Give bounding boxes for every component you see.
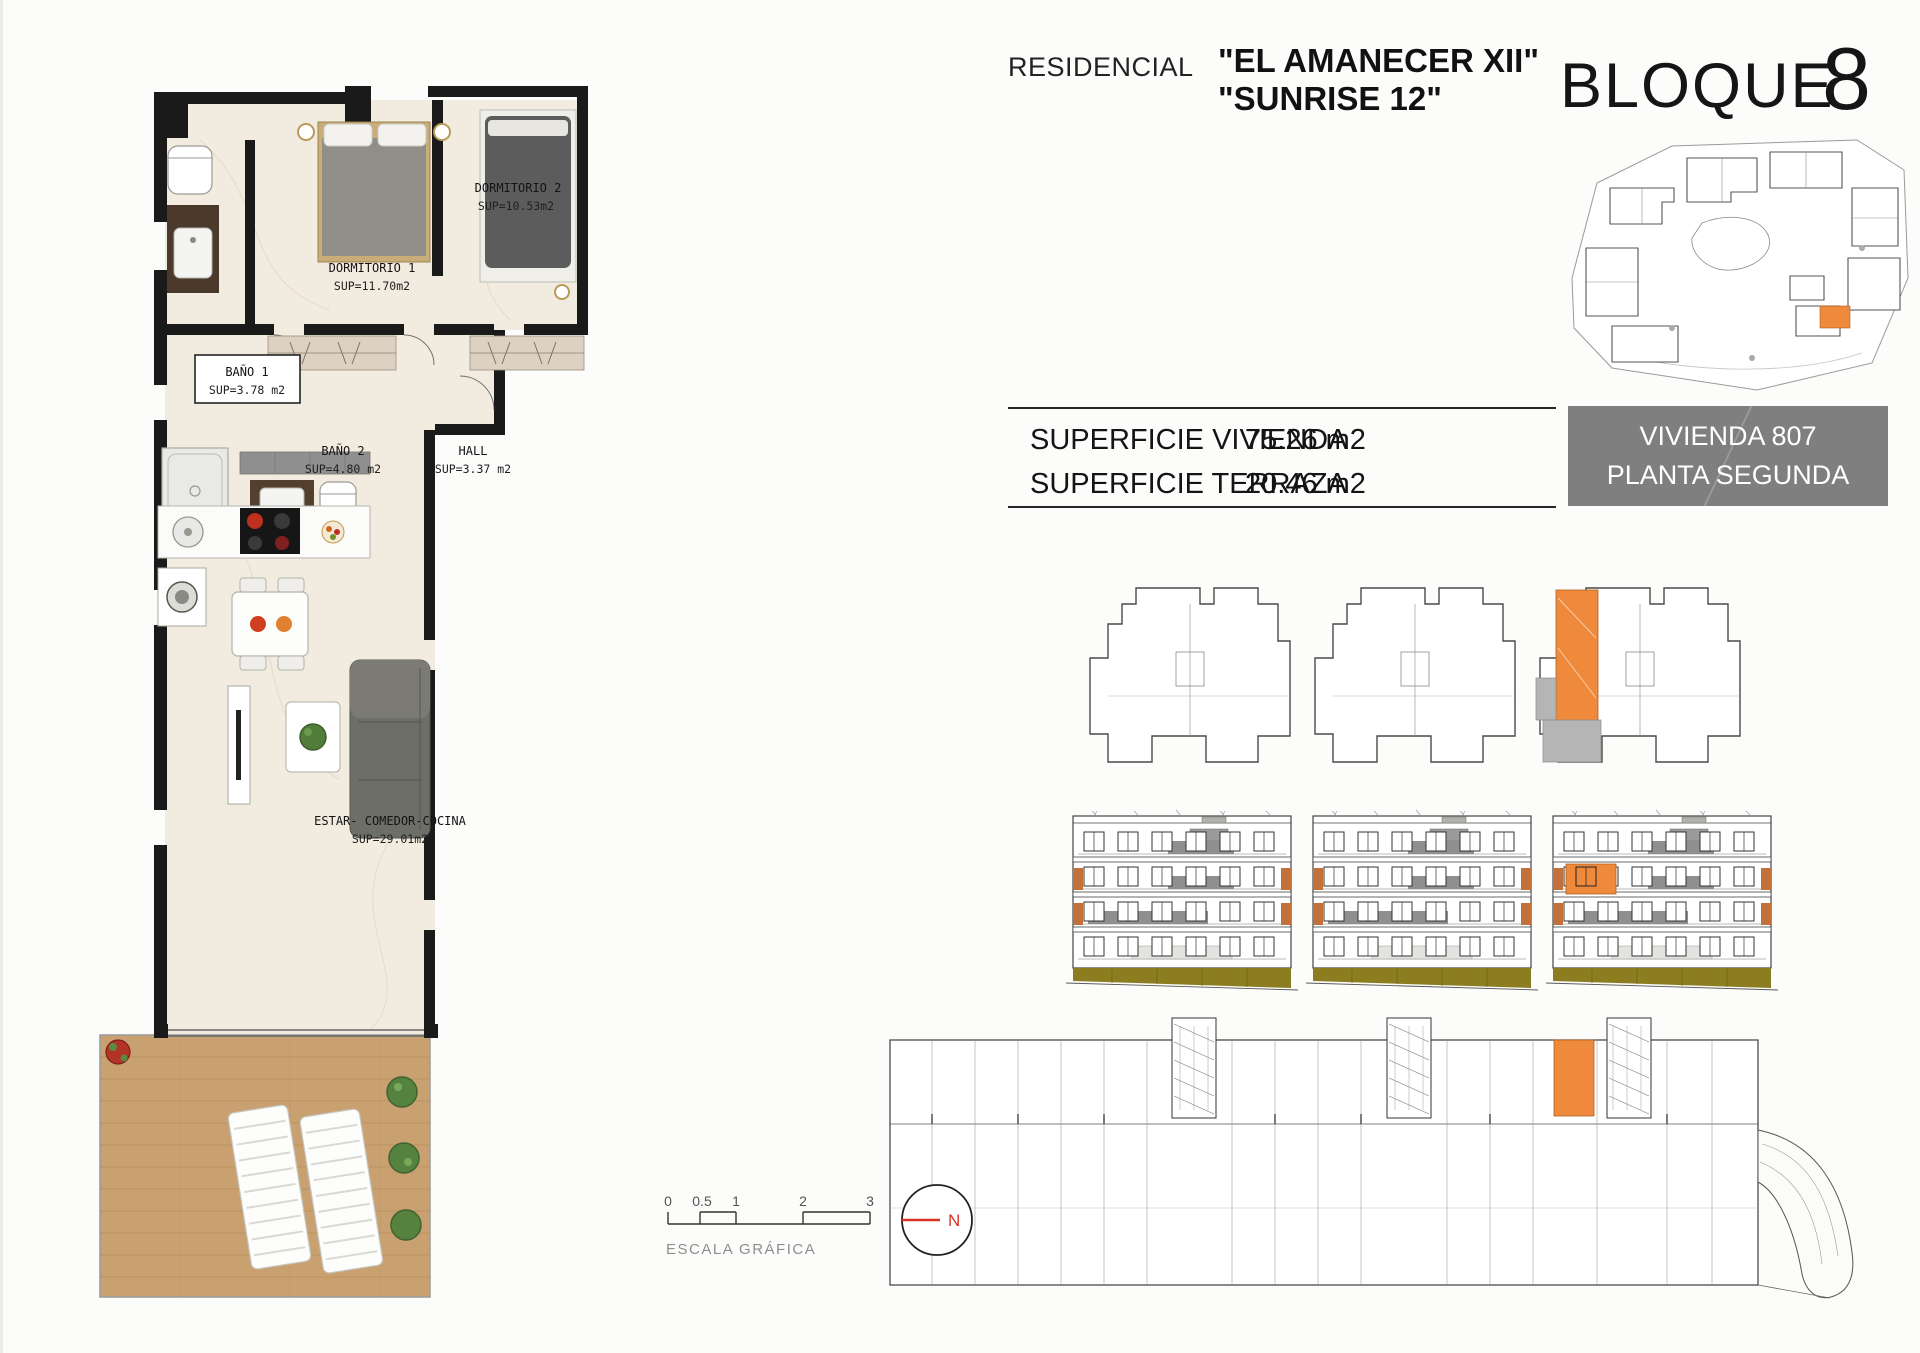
elevation-3-highlight (1566, 864, 1616, 894)
table-top-rule (1008, 407, 1556, 409)
elevation-highlight-unit (1566, 864, 1616, 894)
site-highlight-unit (1820, 306, 1850, 328)
room-label-dormitorio-2: DORMITORIO 2 (475, 181, 562, 195)
unit-identity-box: VIVIENDA 807 PLANTA SEGUNDA (1568, 406, 1888, 506)
room-label-bano-1: BAÑO 1 (225, 364, 268, 379)
elevation-2 (1306, 810, 1538, 990)
room-label-hall: HALL (459, 444, 488, 458)
ground-plan-highlight-unit (1554, 1040, 1594, 1116)
bloque-number: 8 (1822, 28, 1871, 130)
apartment-floorplan: DORMITORIO 1 SUP=11.70m2 DORMITORIO 2 SU… (90, 80, 600, 1320)
table-row-vivienda-value: 75.26 m2 (1245, 424, 1366, 457)
unit-number: VIVIENDA 807 (1639, 421, 1816, 452)
block-floorplans (1078, 578, 1758, 793)
room-area-bano-2: SUP=4.80 m2 (305, 462, 381, 476)
scale-bar-rule (668, 1212, 870, 1224)
residence-name-line1: "EL AMANECER XII" (1218, 42, 1539, 80)
scale-tick-05: 0.5 (692, 1193, 712, 1209)
site-plan (1552, 128, 1912, 408)
scan-edge (0, 0, 3, 1353)
elevations (1062, 800, 1822, 1000)
elevation-1 (1066, 810, 1298, 990)
north-compass: N (890, 1178, 990, 1278)
room-area-hall: SUP=3.37 m2 (435, 462, 511, 476)
scale-ticks: 0 0.5 1 2 3 (664, 1193, 874, 1209)
tower-plan-1 (1090, 588, 1290, 762)
elevation-3 (1546, 810, 1778, 990)
scale-tick-3: 3 (866, 1193, 874, 1209)
room-label-estar: ESTAR- COMEDOR-COCINA (314, 814, 466, 828)
coffee-table (286, 702, 340, 772)
table-bottom-rule (1008, 506, 1556, 508)
ground-plan (872, 1012, 1882, 1312)
scale-tick-0: 0 (664, 1193, 672, 1209)
plan-sheet: RESIDENCIAL "EL AMANECER XII" "SUNRISE 1… (0, 0, 1920, 1353)
scale-bar-label: ESCALA GRÁFICA (666, 1241, 816, 1258)
tower-highlight-unit (1556, 590, 1598, 726)
residencial-label: RESIDENCIAL (1008, 52, 1194, 83)
scale-tick-2: 2 (799, 1193, 807, 1209)
tv-bench (228, 686, 250, 804)
sofa (350, 660, 430, 838)
tower-plan-2 (1315, 588, 1515, 762)
room-area-dormitorio-2: SUP=10.53m2 (478, 199, 554, 213)
unit-floor: PLANTA SEGUNDA (1607, 460, 1850, 491)
room-area-estar: SUP=29.01m2 (352, 832, 428, 846)
dining-set (232, 578, 308, 670)
residence-name-line2: "SUNRISE 12" (1218, 80, 1442, 118)
room-area-dormitorio-1: SUP=11.70m2 (334, 279, 410, 293)
table-row-terraza-value: 20.46 m2 (1245, 468, 1366, 501)
bloque-label: BLOQUE (1560, 50, 1835, 122)
bathroom-1-fixtures (167, 146, 219, 293)
access-ramp (1758, 1130, 1853, 1298)
room-label-bano-2: BAÑO 2 (321, 443, 364, 458)
bed-dormitorio-1 (298, 122, 450, 262)
room-area-bano-1: SUP=3.78 m2 (209, 383, 285, 397)
room-label-dormitorio-1: DORMITORIO 1 (329, 261, 416, 275)
scale-tick-1: 1 (732, 1193, 740, 1209)
laundry-niche (158, 568, 206, 626)
compass-north-label: N (948, 1211, 960, 1230)
